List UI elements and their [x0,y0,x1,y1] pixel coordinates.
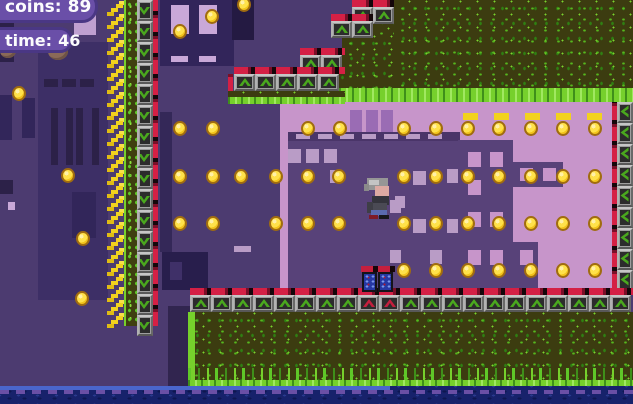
stone-block [484,295,505,312]
stone-block [137,21,153,42]
stone-block-pit [613,298,628,309]
stone-block-pit [300,77,315,88]
bg-window [80,79,94,87]
stone-block-pit [298,298,313,309]
hud-time-badge: time: 46 [0,27,73,53]
stone-block-pit [140,213,150,228]
bg-lit-window [525,113,540,120]
chevron-icon [621,129,630,139]
stone-block-pit [592,298,607,309]
coin [12,86,26,101]
stone-block-pit [361,298,376,309]
bg-window [390,200,401,213]
stone-block-pit [319,298,334,309]
bg-window [350,110,362,134]
zigzag-decor-icon [116,4,123,8]
chevron-icon [621,108,630,118]
bg-window [366,110,378,134]
coin [206,121,220,136]
stone-block [234,74,255,91]
chevron-icon [140,90,150,99]
coin [269,169,283,184]
coin [429,121,443,136]
zigzag-decor-icon [116,212,123,216]
stone-block [617,165,633,186]
chevron-icon [321,299,333,308]
coin [173,24,187,39]
bg-window [44,79,58,87]
coin [556,121,570,136]
stone-block [547,295,568,312]
coin [556,216,570,231]
coin [206,169,220,184]
stone-block [331,21,352,38]
coin [301,216,315,231]
stone-block [137,189,153,210]
chevron-icon [140,237,150,246]
stone-block [137,315,153,336]
chevron-icon [239,78,251,87]
bg-window [8,202,15,210]
stone-block-pit [620,126,630,141]
bg-window [170,262,182,280]
bg-lit-window [463,113,478,120]
chevron-icon [621,213,630,223]
coin [397,263,411,278]
stone-block [337,295,358,312]
stone-block-pit [529,298,544,309]
zigzag-decor-icon [116,95,123,99]
chevron-icon [140,321,150,330]
chevron-icon [378,11,390,20]
coin [461,169,475,184]
bg-window [76,108,83,165]
stone-block-pit [193,298,208,309]
chevron-icon [279,299,291,308]
bg-lit-window [587,113,602,120]
zigzag-decor-icon [116,238,123,242]
zigzag-decor-icon [116,30,123,34]
stone-block [211,295,232,312]
stone-block [358,295,379,312]
stone-block [318,74,339,91]
chevron-icon [140,48,150,57]
stone-block-pit [321,77,336,88]
stone-block-pit [140,234,150,249]
bg-window [324,149,337,163]
stone-block-pit [140,318,150,333]
stone-block [617,207,633,228]
chevron-icon [195,299,207,308]
bg-building [162,252,208,290]
chevron-icon [621,255,630,265]
grass-fringe [300,88,633,102]
stone-block-pit [140,255,150,270]
brick-caps [352,0,394,7]
chevron-icon [216,299,228,308]
stone-block-pit [140,87,150,102]
chevron-icon [323,78,335,87]
stone-block-pit [140,150,150,165]
coin [461,216,475,231]
chevron-icon [552,299,564,308]
zigzag-decor-icon [116,82,123,86]
chevron-icon [281,78,293,87]
door-panel [378,272,393,292]
bg-window [318,134,332,139]
stone-block [421,295,442,312]
coin [269,216,283,231]
stone-block-pit [140,3,150,18]
zigzag-decor-icon [116,134,123,138]
stone-block [137,84,153,105]
coin [524,169,538,184]
zigzag-decor-icon [116,147,123,151]
stone-block [137,273,153,294]
stone-block-pit [620,231,630,246]
stone-block-pit [382,298,397,309]
chevron-icon [140,111,150,120]
player-shoe-right [379,215,389,219]
stone-block-pit [279,77,294,88]
chevron-icon [140,195,150,204]
stone-block [137,210,153,231]
stone-block-pit [140,171,150,186]
coin [234,169,248,184]
stone-block-pit [571,298,586,309]
stone-block [295,295,316,312]
coin [588,216,602,231]
stone-block [274,295,295,312]
brick-caps [234,67,345,74]
chevron-icon [363,299,375,308]
chevron-icon [342,299,354,308]
coin [61,168,75,183]
bg-window [234,246,251,252]
door [361,266,395,292]
hud-time-value: 46 [58,31,80,50]
player-hair-spike [364,184,369,191]
bg-window [306,149,319,163]
zigzag-decor-icon [116,173,123,177]
coin [301,121,315,136]
chevron-icon [140,174,150,183]
zigzag-decor-icon [116,121,123,125]
stone-block-pit [620,147,630,162]
coin [492,263,506,278]
zigzag-decor-icon [116,108,123,112]
zigzag-decor-icon [116,303,123,307]
stone-block-pit [140,129,150,144]
stone-block [137,231,153,252]
stone-block [255,74,276,91]
stone-block-pit [355,24,370,35]
zigzag-decor-icon [116,251,123,255]
coin [173,121,187,136]
stone-block-pit [140,66,150,81]
stone-block [137,252,153,273]
coin [173,216,187,231]
hud-coins-value: 89 [68,0,92,17]
grass-field [342,35,394,92]
brick-caps [300,48,345,55]
bg-window [406,134,420,139]
coin [588,121,602,136]
brick-caps [331,14,373,21]
stone-block [610,295,631,312]
bg-window [171,56,188,62]
water-wave-row [0,390,633,394]
stone-block [589,295,610,312]
stone-block [617,249,633,270]
stone-block-pit [445,298,460,309]
stone-block-pit [140,24,150,39]
bg-window [543,168,556,181]
stone-block [526,295,547,312]
floor-brick-caps [190,288,633,295]
bg-window [51,108,58,165]
coin [397,169,411,184]
player-hair-highlight [369,180,379,185]
stone-block [190,295,211,312]
stone-block-pit [237,77,252,88]
chevron-icon [260,78,272,87]
coin [173,169,187,184]
chevron-icon [621,276,630,286]
stone-block-pit [214,298,229,309]
tower-vine-column [124,0,137,326]
stone-block [232,295,253,312]
chevron-icon [615,299,627,308]
stone-block-pit [620,189,630,204]
coin [76,231,90,246]
tower-brick-edge [153,0,158,326]
bg-window [413,219,426,233]
coin [492,216,506,231]
bg-window [199,56,216,62]
island-fringe [228,97,345,104]
hud-coins-badge: coins: 89 [0,0,98,23]
bg-window [384,134,398,139]
bg-window [362,134,376,139]
stone-block-pit [140,276,150,291]
stone-block [442,295,463,312]
stone-block-pit [277,298,292,309]
chevron-icon [384,299,396,308]
chevron-icon [140,279,150,288]
bg-window [62,79,76,87]
zigzag-decor-icon [116,186,123,190]
stone-block-pit [620,105,630,120]
bg-lit-window [556,113,571,120]
chevron-icon [357,25,369,34]
chevron-icon [426,299,438,308]
stone-block [505,295,526,312]
bg-building [22,98,35,138]
floor-grass-blades [188,368,633,380]
coin [492,169,506,184]
bg-window [381,110,393,134]
chevron-icon [140,6,150,15]
stone-block [137,0,153,21]
chevron-icon [468,299,480,308]
chevron-icon [140,300,150,309]
stone-block-pit [140,192,150,207]
coin [524,263,538,278]
zigzag-decor-icon [116,199,123,203]
chevron-icon [573,299,585,308]
bg-window [468,152,481,167]
chevron-icon [621,192,630,202]
hud-coins-label: coins: [5,0,62,17]
stone-block [137,42,153,63]
bg-building [0,95,12,140]
stone-block [352,21,373,38]
stone-block [617,102,633,123]
zigzag-decor-icon [116,225,123,229]
stone-block-pit [620,273,630,288]
stone-block-pit [140,297,150,312]
chevron-icon [447,299,459,308]
hud-time-label: time: [5,31,52,50]
stone-block [463,295,484,312]
coin [524,121,538,136]
stone-block-pit [334,24,349,35]
zigzag-decor-icon [116,290,123,294]
chevron-icon [302,78,314,87]
stone-block [137,126,153,147]
coin [429,263,443,278]
bg-window [288,149,301,163]
coin [556,263,570,278]
stone-block-pit [403,298,418,309]
zigzag-decor-icon [116,17,123,21]
coin [461,263,475,278]
chevron-icon [258,299,270,308]
stone-block [379,295,400,312]
game-viewport[interactable]: coins: 89 time: 46 [0,0,633,404]
stone-block [137,105,153,126]
coin [461,121,475,136]
stone-block-pit [235,298,250,309]
bg-window [390,250,401,263]
chevron-icon [621,171,630,181]
coin [588,169,602,184]
stone-block [137,168,153,189]
stone-block [253,295,274,312]
coin [332,169,346,184]
chevron-icon [510,299,522,308]
chevron-icon [531,299,543,308]
island-brick-edge [228,74,233,91]
grass-field [394,0,633,92]
zigzag-decor-icon [116,277,123,281]
coin [429,216,443,231]
chevron-icon [405,299,417,308]
zigzag-decor-icon [116,264,123,268]
stone-block [316,295,337,312]
coin [429,169,443,184]
zigzag-decor-icon [116,160,123,164]
stone-block-pit [550,298,565,309]
bg-lit-window [494,113,509,120]
stone-block-pit [620,252,630,267]
stone-block-pit [340,298,355,309]
coin [556,169,570,184]
bg-window [490,152,503,167]
chevron-icon [237,299,249,308]
chevron-icon [140,69,150,78]
coin [492,121,506,136]
chevron-icon [300,299,312,308]
chevron-icon [336,25,348,34]
bg-building [160,112,172,252]
player-character [366,178,391,219]
chevron-icon [621,234,630,244]
stone-block-pit [140,108,150,123]
stone-block [137,63,153,84]
coin [301,169,315,184]
chevron-icon [489,299,501,308]
stone-block [373,7,394,24]
player-shoe-left [369,215,378,219]
stone-block-pit [258,77,273,88]
stone-block-pit [487,298,502,309]
stone-block-pit [140,45,150,60]
coin [333,121,347,136]
stone-block [137,294,153,315]
coin [524,216,538,231]
chevron-icon [140,216,150,225]
chevron-icon [140,132,150,141]
stone-block [617,123,633,144]
zigzag-decor-icon [116,316,123,320]
stone-block [400,295,421,312]
stone-block [297,74,318,91]
stone-block [568,295,589,312]
stone-block [137,147,153,168]
stone-block [617,186,633,207]
stone-block-pit [424,298,439,309]
chevron-icon [140,258,150,267]
stone-block-pit [620,210,630,225]
bg-window [430,250,442,264]
coin [75,291,89,306]
bg-window [66,108,73,165]
zigzag-decor-icon [116,43,123,47]
stone-block-pit [508,298,523,309]
chevron-icon [140,27,150,36]
bg-window [92,108,99,165]
coin [397,216,411,231]
stone-block-pit [256,298,271,309]
zigzag-decor-icon [116,69,123,73]
bg-window [413,171,426,185]
chevron-icon [594,299,606,308]
coin [397,121,411,136]
coin [206,216,220,231]
stone-block [276,74,297,91]
stone-block-pit [620,168,630,183]
chevron-icon [621,150,630,160]
coin [205,9,219,24]
stone-block-pit [466,298,481,309]
bg-building [0,180,13,194]
stone-block-pit [376,10,391,21]
door-panel [362,272,377,292]
stone-block [617,144,633,165]
coin [588,263,602,278]
